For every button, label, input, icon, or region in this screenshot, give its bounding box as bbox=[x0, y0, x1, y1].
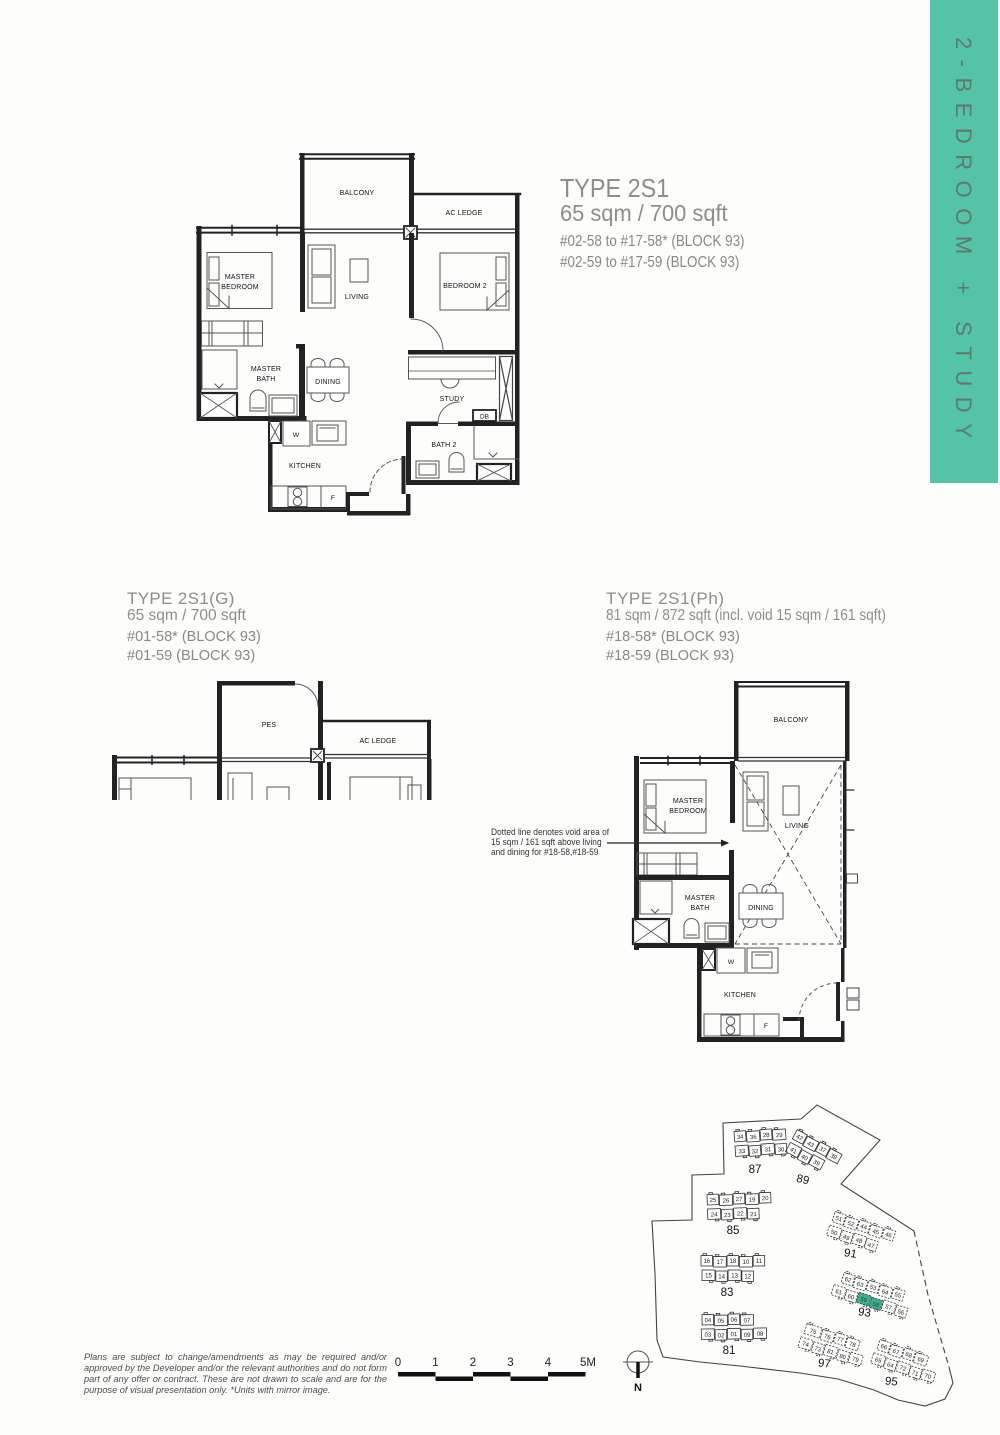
svg-text:47: 47 bbox=[867, 1243, 876, 1251]
svg-text:0: 0 bbox=[395, 1357, 401, 1369]
svg-text:BATH: BATH bbox=[691, 905, 710, 912]
svg-text:4: 4 bbox=[545, 1357, 552, 1369]
svg-text:33: 33 bbox=[738, 1149, 746, 1155]
svg-text:91: 91 bbox=[843, 1247, 857, 1261]
svg-text:37: 37 bbox=[818, 1146, 827, 1155]
svg-text:N: N bbox=[634, 1382, 642, 1394]
svg-text:34: 34 bbox=[737, 1135, 745, 1141]
svg-text:MASTER: MASTER bbox=[685, 895, 715, 902]
svg-text:DINING: DINING bbox=[315, 379, 341, 386]
svg-text:14: 14 bbox=[718, 1275, 725, 1281]
svg-text:66: 66 bbox=[879, 1344, 888, 1352]
svg-text:16: 16 bbox=[703, 1259, 710, 1265]
svg-text:60: 60 bbox=[847, 1294, 856, 1302]
svg-text:MASTER: MASTER bbox=[225, 274, 255, 281]
svg-text:18: 18 bbox=[730, 1259, 737, 1265]
svg-text:13: 13 bbox=[731, 1274, 738, 1280]
svg-text:38: 38 bbox=[829, 1153, 838, 1162]
svg-text:56: 56 bbox=[897, 1309, 906, 1317]
svg-text:15: 15 bbox=[705, 1274, 712, 1280]
svg-text:22: 22 bbox=[737, 1211, 745, 1217]
svg-text:W: W bbox=[728, 959, 735, 966]
svg-text:46: 46 bbox=[884, 1232, 893, 1240]
svg-text:W: W bbox=[293, 432, 300, 439]
svg-text:AC LEDGE: AC LEDGE bbox=[360, 738, 397, 745]
svg-text:43: 43 bbox=[806, 1141, 815, 1150]
svg-text:LIVING: LIVING bbox=[785, 823, 809, 830]
svg-text:12: 12 bbox=[744, 1275, 751, 1281]
svg-text:93: 93 bbox=[857, 1306, 871, 1320]
svg-text:97: 97 bbox=[817, 1357, 831, 1370]
svg-text:23: 23 bbox=[724, 1213, 732, 1219]
svg-text:53: 53 bbox=[869, 1284, 878, 1292]
svg-text:42: 42 bbox=[795, 1134, 804, 1143]
svg-text:09: 09 bbox=[744, 1333, 751, 1339]
svg-text:MASTER: MASTER bbox=[251, 366, 281, 373]
svg-text:31: 31 bbox=[764, 1147, 772, 1153]
svg-text:AC LEDGE: AC LEDGE bbox=[446, 210, 483, 217]
svg-text:36: 36 bbox=[750, 1135, 758, 1141]
svg-text:02: 02 bbox=[718, 1333, 725, 1339]
svg-text:20: 20 bbox=[762, 1196, 770, 1202]
svg-text:64: 64 bbox=[886, 1362, 895, 1370]
svg-text:LIVING: LIVING bbox=[345, 294, 369, 301]
svg-text:05: 05 bbox=[718, 1319, 725, 1325]
svg-text:25: 25 bbox=[710, 1198, 718, 1204]
svg-text:DINING: DINING bbox=[748, 905, 774, 912]
svg-text:24: 24 bbox=[711, 1212, 719, 1218]
svg-text:28: 28 bbox=[763, 1133, 771, 1139]
svg-text:51: 51 bbox=[834, 1216, 843, 1224]
svg-text:06: 06 bbox=[731, 1318, 738, 1324]
svg-text:BATH 2: BATH 2 bbox=[431, 442, 456, 449]
svg-text:49: 49 bbox=[842, 1234, 851, 1242]
svg-text:BEDROOM: BEDROOM bbox=[669, 808, 707, 815]
svg-text:75: 75 bbox=[809, 1328, 818, 1336]
svg-text:26: 26 bbox=[723, 1198, 731, 1204]
svg-text:2: 2 bbox=[470, 1357, 476, 1369]
svg-text:95: 95 bbox=[884, 1375, 898, 1388]
svg-text:19: 19 bbox=[749, 1197, 757, 1203]
svg-text:71: 71 bbox=[911, 1370, 920, 1378]
svg-text:21: 21 bbox=[750, 1212, 758, 1218]
svg-text:27: 27 bbox=[736, 1197, 744, 1203]
svg-text:BEDROOM 2: BEDROOM 2 bbox=[443, 283, 487, 290]
svg-text:83: 83 bbox=[721, 1287, 734, 1299]
svg-text:11: 11 bbox=[756, 1259, 763, 1265]
svg-text:PES: PES bbox=[262, 722, 277, 729]
svg-text:89: 89 bbox=[795, 1173, 810, 1188]
svg-text:41: 41 bbox=[789, 1147, 798, 1156]
svg-text:BALCONY: BALCONY bbox=[774, 717, 809, 724]
svg-text:80: 80 bbox=[838, 1354, 847, 1362]
svg-text:MASTER: MASTER bbox=[673, 798, 703, 805]
svg-text:77: 77 bbox=[836, 1337, 845, 1345]
svg-text:BATH: BATH bbox=[257, 376, 276, 383]
svg-text:73: 73 bbox=[813, 1346, 822, 1354]
svg-text:1: 1 bbox=[432, 1357, 438, 1369]
svg-text:5M: 5M bbox=[580, 1357, 596, 1369]
svg-text:81: 81 bbox=[723, 1345, 736, 1357]
svg-text:07: 07 bbox=[744, 1318, 751, 1324]
svg-text:29: 29 bbox=[776, 1133, 784, 1139]
svg-text:BEDROOM: BEDROOM bbox=[221, 284, 259, 291]
svg-text:44: 44 bbox=[859, 1224, 868, 1232]
svg-text:62: 62 bbox=[844, 1277, 853, 1285]
svg-text:39: 39 bbox=[812, 1159, 821, 1168]
svg-text:40: 40 bbox=[800, 1154, 809, 1163]
svg-text:55: 55 bbox=[894, 1292, 903, 1300]
svg-text:08: 08 bbox=[757, 1332, 764, 1338]
svg-text:F: F bbox=[764, 1023, 768, 1030]
svg-text:04: 04 bbox=[705, 1318, 712, 1324]
svg-text:85: 85 bbox=[727, 1225, 740, 1237]
svg-text:30: 30 bbox=[778, 1147, 786, 1153]
svg-text:17: 17 bbox=[716, 1260, 723, 1266]
svg-text:32: 32 bbox=[752, 1149, 760, 1155]
svg-text:KITCHEN: KITCHEN bbox=[724, 992, 756, 999]
svg-text:DB: DB bbox=[480, 414, 489, 421]
svg-text:F: F bbox=[331, 495, 335, 502]
svg-text:01: 01 bbox=[731, 1332, 738, 1338]
svg-text:BALCONY: BALCONY bbox=[340, 190, 375, 197]
svg-text:3: 3 bbox=[507, 1357, 513, 1369]
svg-text:87: 87 bbox=[749, 1164, 762, 1176]
svg-text:KITCHEN: KITCHEN bbox=[289, 463, 321, 470]
svg-text:03: 03 bbox=[704, 1333, 711, 1339]
svg-text:STUDY: STUDY bbox=[440, 396, 465, 403]
svg-text:68: 68 bbox=[904, 1352, 913, 1360]
svg-text:10: 10 bbox=[743, 1260, 750, 1266]
